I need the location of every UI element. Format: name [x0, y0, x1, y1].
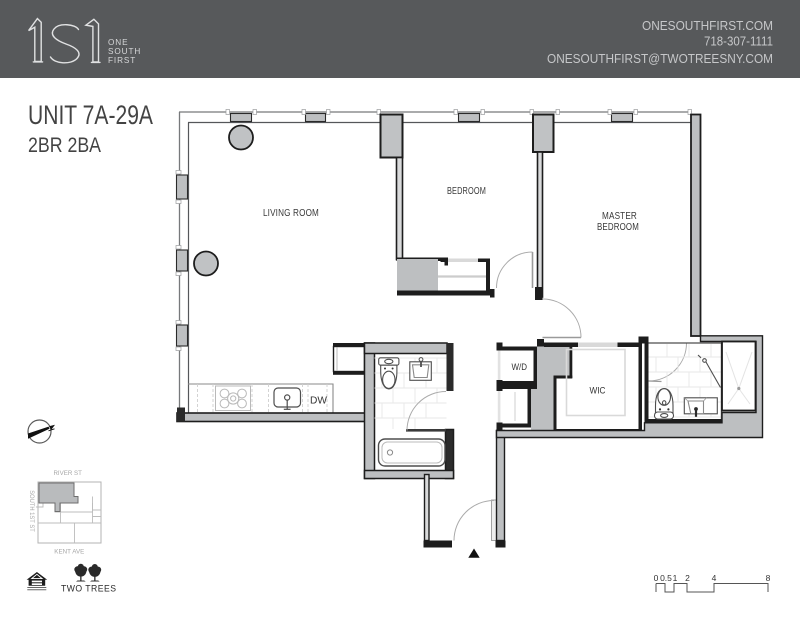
svg-text:4: 4 [712, 573, 717, 583]
svg-text:0.5: 0.5 [660, 573, 672, 583]
svg-text:SOUTH 1ST ST: SOUTH 1ST ST [28, 490, 35, 532]
svg-text:W/D: W/D [512, 362, 528, 372]
svg-text:DW: DW [310, 395, 327, 407]
svg-text:1: 1 [673, 573, 678, 583]
svg-text:8: 8 [766, 573, 771, 583]
svg-text:ONESOUTHFIRST.COM: ONESOUTHFIRST.COM [642, 18, 773, 33]
svg-text:UNIT 7A-29A: UNIT 7A-29A [28, 100, 153, 130]
svg-text:RIVER ST: RIVER ST [53, 470, 82, 477]
svg-text:TWO TREES: TWO TREES [61, 583, 117, 594]
svg-text:2: 2 [685, 573, 690, 583]
svg-text:LIVING ROOM: LIVING ROOM [263, 207, 319, 219]
svg-text:BEDROOM: BEDROOM [447, 185, 486, 197]
svg-text:SOUTH: SOUTH [108, 47, 141, 56]
svg-text:ONE: ONE [108, 38, 128, 47]
svg-text:WIC: WIC [590, 386, 606, 397]
svg-text:0: 0 [654, 573, 659, 583]
svg-text:718-307-1111: 718-307-1111 [704, 34, 773, 49]
svg-text:BEDROOM: BEDROOM [597, 221, 639, 233]
svg-text:ONESOUTHFIRST@TWOTREESNY.COM: ONESOUTHFIRST@TWOTREESNY.COM [547, 51, 773, 66]
svg-text:2BR 2BA: 2BR 2BA [28, 134, 101, 157]
svg-text:KENT AVE: KENT AVE [54, 549, 84, 556]
svg-text:FIRST: FIRST [108, 56, 136, 65]
